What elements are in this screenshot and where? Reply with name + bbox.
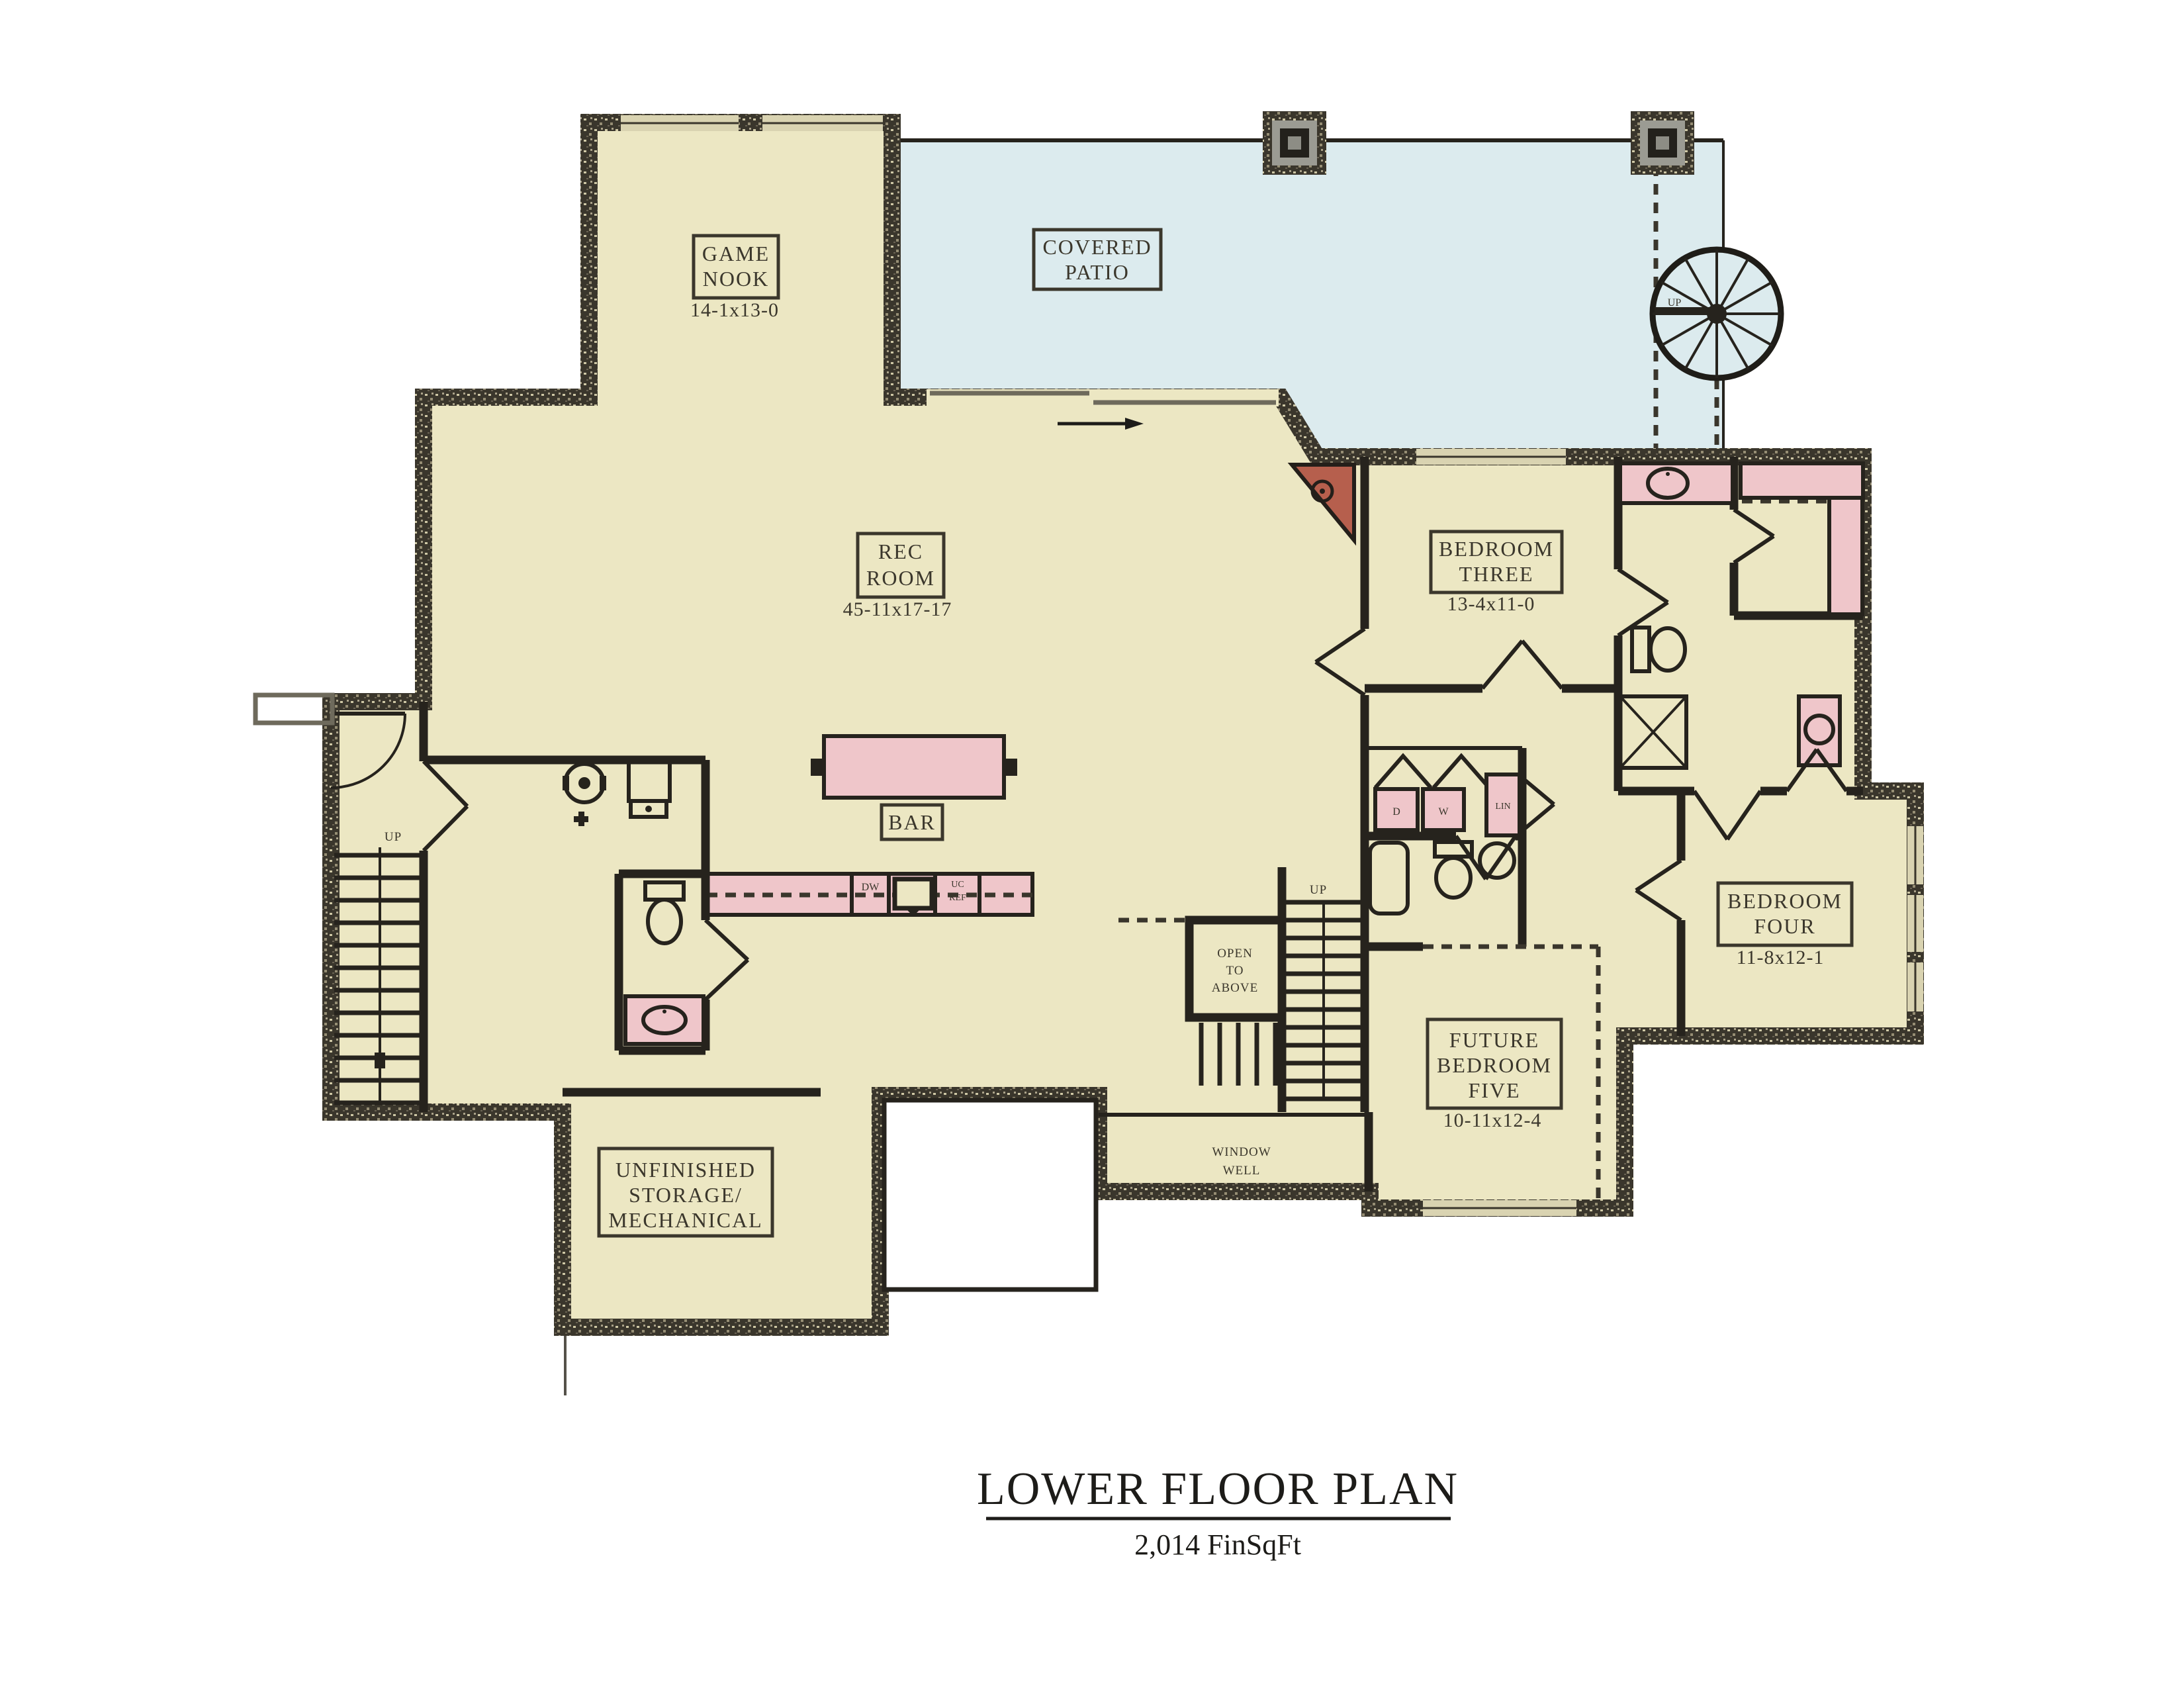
game-nook-name-line1: GAME	[702, 242, 770, 265]
patio-column-icon	[1631, 111, 1694, 175]
future-bedroom-five-dimension: 10-11x12-4	[1443, 1109, 1542, 1131]
covered-patio-name-line1: COVERED	[1042, 235, 1152, 259]
window-well-line2: WELL	[1223, 1164, 1261, 1178]
future-bedroom-five-name-line2: BEDROOM	[1437, 1053, 1552, 1077]
window-well-opening	[884, 1100, 1096, 1289]
bedroom-four-name-line1: BEDROOM	[1727, 889, 1843, 913]
bedroom-three-name-line1: BEDROOM	[1439, 537, 1554, 561]
unfinished-storage-name-line3: MECHANICAL	[608, 1208, 762, 1232]
rec-room-dimension: 45-11x17-17	[843, 598, 952, 620]
patio-column-icon	[1263, 111, 1326, 175]
window-well-line1: WINDOW	[1212, 1145, 1271, 1159]
left-stair-up-label: UP	[385, 830, 402, 844]
bedroom-three-name-line2: THREE	[1459, 562, 1533, 586]
bar-name: BAR	[888, 810, 936, 834]
dishwasher-label: DW	[862, 882, 880, 893]
open-to-above-line3: ABOVE	[1212, 981, 1258, 995]
bar-island	[811, 736, 1017, 798]
plan-title: LOWER FLOOR PLAN	[977, 1464, 1459, 1515]
unfinished-storage-name-line1: UNFINISHED	[615, 1158, 756, 1182]
future-bedroom-five-name-line1: FUTURE	[1449, 1028, 1539, 1052]
room-label-game-nook: GAME NOOK 14-1x13-0	[690, 236, 779, 321]
rec-room-name-line1: REC	[878, 539, 923, 563]
plan-square-footage: 2,014 FinSqFt	[1134, 1528, 1301, 1561]
future-bedroom-five-name-line3: FIVE	[1468, 1078, 1520, 1102]
bedroom-three-dimension: 13-4x11-0	[1447, 593, 1535, 615]
bathroom-sink-icon	[625, 996, 704, 1044]
sliding-door-icon	[927, 389, 1279, 406]
game-nook-name-line2: NOOK	[703, 267, 769, 291]
covered-patio-name-line2: PATIO	[1065, 260, 1130, 284]
center-stair-up-label: UP	[1310, 883, 1327, 897]
game-nook-dimension: 14-1x13-0	[690, 299, 779, 321]
bathroom-vanity-icon	[1620, 463, 1733, 503]
floor-plan-drawing: UP DW UC REF	[0, 0, 2184, 1688]
bedroom-four-name-line2: FOUR	[1754, 914, 1815, 938]
uc-ref-label-line2: REF	[949, 893, 966, 903]
open-to-above-line1: OPEN	[1217, 947, 1253, 961]
bar-counter: DW UC REF	[707, 874, 1032, 916]
unfinished-storage-name-line2: STORAGE/	[629, 1183, 743, 1207]
washer-label: W	[1438, 806, 1449, 818]
open-to-above-line2: TO	[1226, 964, 1244, 978]
uc-ref-label-line1: UC	[951, 880, 964, 890]
spiral-stair-up-label: UP	[1668, 297, 1682, 308]
dryer-label: D	[1392, 806, 1400, 818]
linen-label: LIN	[1495, 802, 1510, 812]
bedroom-four-dimension: 11-8x12-1	[1737, 947, 1825, 968]
floor-plan-page: UP DW UC REF	[0, 0, 2184, 1688]
rec-room-name-line2: ROOM	[866, 566, 935, 590]
